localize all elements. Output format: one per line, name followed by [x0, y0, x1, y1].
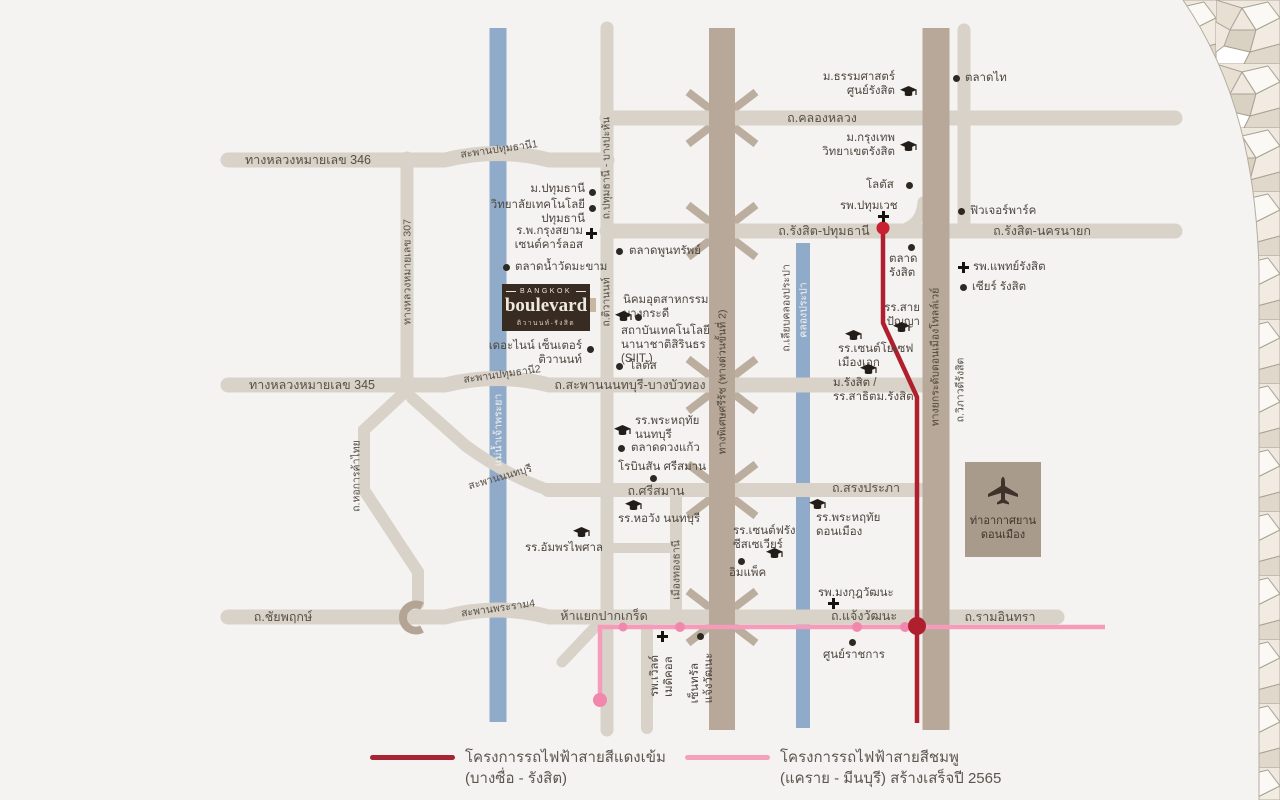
map-frame: ถ.คลองหลวง ทางหลวงหมายเลข 346 ถ.รังสิต-ป…	[0, 0, 1280, 800]
mosaic-corner-decoration	[0, 0, 1280, 800]
